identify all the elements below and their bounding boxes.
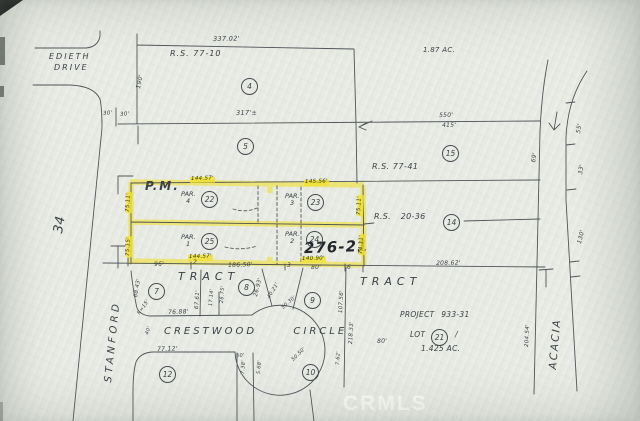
- lot-number-circle: 23: [307, 194, 324, 211]
- lot-number-circle: 9: [304, 292, 321, 309]
- dimension-label: 80': [377, 339, 387, 345]
- dimension-label: 76.88': [168, 309, 189, 316]
- south-lot-lines: [237, 353, 314, 421]
- dimension-label: 2: [193, 260, 197, 266]
- dimension-label: 5.68': [257, 360, 263, 374]
- dimension-label: 77.12': [157, 346, 178, 353]
- map-linework: [0, 0, 640, 421]
- lot-number-circle: 22: [201, 191, 218, 208]
- plat-map-scan: EDIETH DRIVE STANFORD CRESTWOOD CIRCLE A…: [0, 0, 640, 421]
- dimension-label: 6: [347, 265, 351, 271]
- lot-number-circle: 12: [159, 366, 176, 383]
- project-number: PROJECT 933-31: [400, 311, 470, 319]
- dimension-label: 75.15': [126, 236, 132, 257]
- dimension-label: 74.11': [359, 234, 365, 255]
- lot-number-circle: 21: [431, 329, 448, 346]
- lot-label-suffix: /: [455, 331, 458, 339]
- lot-number-circle: 7: [148, 283, 165, 300]
- dimension-label: 415': [442, 123, 456, 129]
- dimension-label: 145.56': [304, 180, 329, 186]
- street-edieth-lines: [33, 31, 102, 421]
- street-label-edieth: EDIETH: [49, 53, 91, 61]
- parcel-label: PAR.4: [181, 191, 196, 205]
- tract-label-east: TRACT: [360, 276, 421, 287]
- lot-number-circle: 25: [201, 233, 218, 250]
- acreage-label-ne: 1.87 AC.: [423, 47, 455, 54]
- dimension-label: 7.38': [241, 360, 247, 374]
- crmls-watermark: CRMLS: [343, 393, 428, 414]
- dimension-label: 204.54': [525, 324, 532, 347]
- tract-label-west: TRACT: [178, 271, 239, 282]
- dimension-label: 80': [311, 265, 321, 271]
- lot-number-circle: 4: [241, 78, 258, 95]
- dimension-label: 208.62': [436, 261, 461, 267]
- dimension-label: 337.02': [213, 36, 240, 43]
- dimension-label: 30': [103, 111, 113, 117]
- scan-corner-artifact: [0, 0, 23, 16]
- dimension-label: 7.62': [336, 351, 342, 365]
- parcel-map-label: P.M.: [145, 180, 180, 192]
- parcel-label: PAR.1: [181, 234, 196, 248]
- lot-acreage: 1.425 AC.: [421, 345, 460, 353]
- parcel-label: PAR.3: [285, 193, 300, 207]
- scan-edge-mark: [0, 402, 3, 421]
- dimension-label: 75.11': [126, 192, 132, 213]
- dimension-label: 107.56': [339, 290, 346, 313]
- lot-number-circle: 14: [443, 214, 460, 231]
- dimension-label: 218.33': [349, 321, 356, 344]
- dimension-label: 140.90': [301, 257, 326, 263]
- scan-edge-mark: [0, 37, 5, 65]
- record-survey-77-41: R.S. 77-41: [372, 163, 419, 171]
- dimension-label: 50': [236, 354, 245, 359]
- street-label-crestwood-circle: CRESTWOOD CIRCLE: [164, 327, 347, 337]
- dimension-label: 144.57': [190, 177, 215, 183]
- dimension-label: 75.11': [357, 195, 363, 216]
- street-label-edieth-drive: DRIVE: [54, 64, 89, 72]
- record-survey-20-36: R.S. 20-36: [374, 213, 426, 221]
- scan-edge-mark: [0, 86, 4, 97]
- parcel-label: PAR.2: [285, 231, 300, 245]
- lot-number-circle: 24: [306, 231, 323, 248]
- dimension-label: 550': [439, 113, 453, 119]
- dimension-label: 317'±: [236, 110, 257, 117]
- lot-number-circle: 15: [442, 145, 459, 162]
- section-number: 34: [52, 215, 68, 234]
- dimension-label: 3: [287, 263, 291, 269]
- lot-number-circle: 10: [302, 364, 319, 381]
- lot-label: LOT: [410, 331, 425, 339]
- record-survey-77-10: R.S. 77-10: [170, 50, 222, 58]
- dimension-label: 96': [154, 262, 164, 268]
- dimension-label: 30': [120, 112, 130, 118]
- dimension-label: 144.57': [188, 255, 213, 261]
- lot-number-circle: 8: [238, 279, 255, 296]
- lot-number-circle: 5: [237, 138, 254, 155]
- dimension-label: 186.50': [228, 262, 253, 269]
